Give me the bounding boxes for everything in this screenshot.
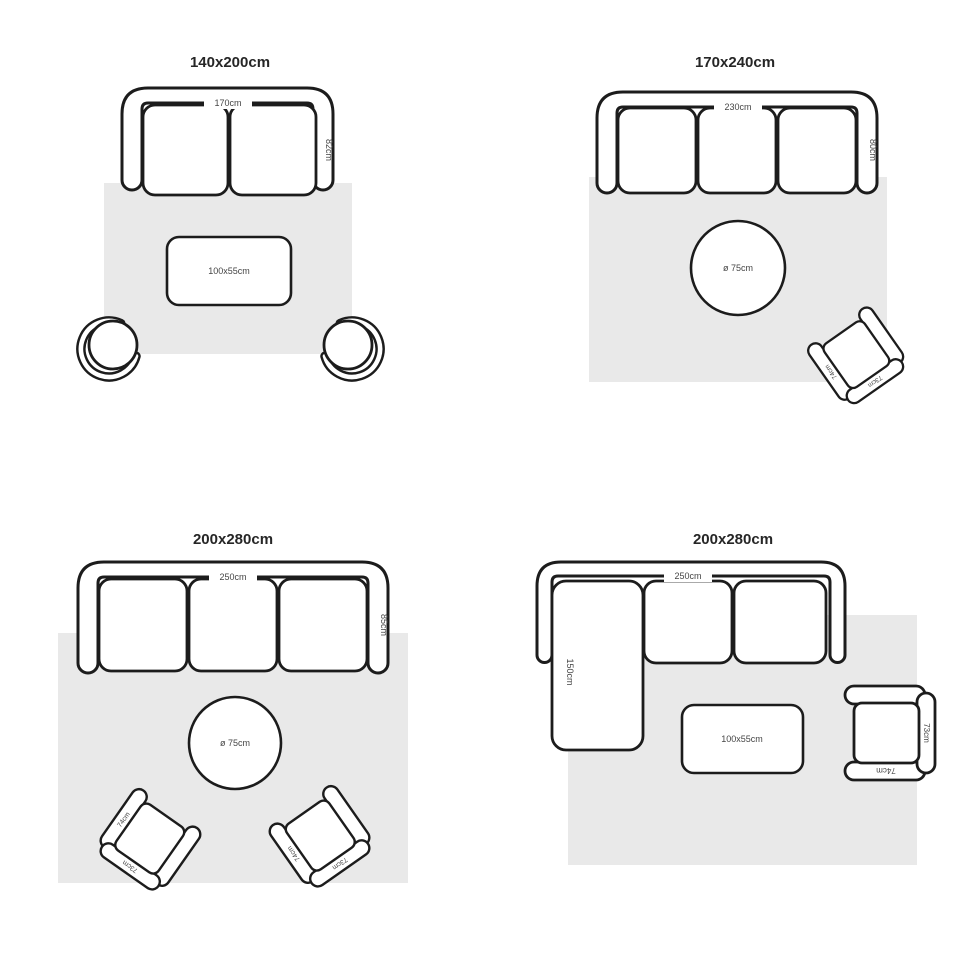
sofa-cushion [143, 105, 228, 195]
coffee-table: 100x55cm [682, 705, 803, 773]
armchair [845, 686, 935, 780]
pouf-chair [81, 321, 137, 377]
sofa-width-label: 230cm [724, 102, 751, 112]
sofa-cushion [778, 108, 856, 193]
sofa-width-label: 250cm [674, 571, 701, 581]
sofa-2-seat: 170cm 82cm [122, 88, 334, 195]
round-table: ø 75cm [691, 221, 785, 315]
sofa-3-seat: 230cm 80cm [597, 92, 878, 193]
sofa-cushion [279, 579, 367, 671]
sofa-depth-label: 85cm [379, 614, 389, 636]
sofa-depth-label: 82cm [324, 139, 334, 161]
rug-size-title: 170x240cm [695, 54, 775, 71]
sofa-cushion [644, 581, 732, 663]
sofa-3-seat: 250cm 85cm [78, 562, 389, 673]
chaise-length-label: 150cm [565, 658, 575, 685]
rug-size-title: 200x280cm [693, 531, 773, 548]
quadrant-top-left: 140x200cm 170cm 82cm 100x55cm [81, 54, 380, 377]
coffee-table: 100x55cm [167, 237, 291, 305]
sofa-cushion [618, 108, 696, 193]
rug-size-guide: 74cm 73cm 140x200cm 170cm 82cm 100x55cm [0, 0, 970, 970]
quadrant-bottom-right: 200x280cm 250cm 150cm 100x55cm [537, 531, 935, 865]
sofa-cushion [99, 579, 187, 671]
quadrant-top-right: 170x240cm 230cm 80cm ø 75cm [589, 54, 911, 409]
sofa-width-label: 250cm [219, 572, 246, 582]
rug-size-title: 140x200cm [190, 54, 270, 71]
rug-size-title: 200x280cm [193, 531, 273, 548]
sofa-cushion [734, 581, 826, 663]
round-table: ø 75cm [189, 697, 281, 789]
round-table-label: ø 75cm [723, 263, 753, 273]
sofa-width-label: 170cm [214, 98, 241, 108]
pouf-chair [324, 321, 380, 377]
coffee-table-label: 100x55cm [208, 266, 250, 276]
round-table-label: ø 75cm [220, 738, 250, 748]
sofa-depth-label: 80cm [868, 139, 878, 161]
coffee-table-label: 100x55cm [721, 734, 763, 744]
size-guide-canvas: 74cm 73cm 140x200cm 170cm 82cm 100x55cm [0, 0, 970, 970]
sofa-cushion [189, 579, 277, 671]
sofa-cushion [230, 105, 316, 195]
sofa-cushion [698, 108, 776, 193]
quadrant-bottom-left: 200x280cm 250cm 85cm ø 75cm [58, 531, 408, 896]
